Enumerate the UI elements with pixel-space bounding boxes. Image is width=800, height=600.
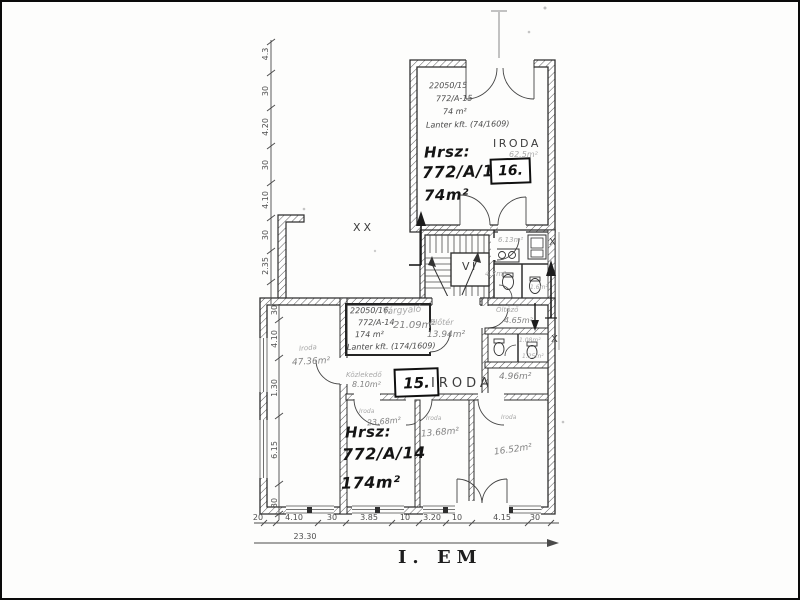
office1-room-name: Iroda [359,409,374,415]
dim-bottom-2: 4.10 [285,514,303,522]
unit16-registry-line4: Lanter kft. (74/1609) [426,120,510,129]
dim-left-lower-4: 6.15 [271,441,279,459]
unit16-room-type-label: IRODA [493,138,541,149]
dim-bottom-1: 20 [253,514,263,522]
dim-bottom-3: 30 [327,514,337,522]
kozlekedo-room-name: Közlekedő [346,372,382,379]
kozlekedo-room-area: 8.10m² [352,381,381,389]
dim-left-lower-5: 30 [271,498,279,508]
office2-room-name: Iroda [426,416,441,422]
dim-left-lower-2: 4.10 [271,330,279,348]
dim-bottom-6: 3.20 [423,514,441,522]
unit15-total-area: 174m² [341,474,401,492]
stairwell-label: VI [462,261,478,272]
dim-left-upper-6: 30 [262,230,270,240]
unit16-hrsz-label: Hrsz: [424,144,470,160]
dim-left-upper-2: 30 [262,86,270,96]
hall-room-area: 4.96m² [499,373,531,382]
floor-plan-drawing [2,2,800,600]
unit16-registry-line3: 74 m² [443,108,467,116]
unit16-eloter-area: 6.13m² [498,237,523,244]
section-mark-upper: X [549,238,558,248]
eloter-room-name: Előtér [430,319,454,327]
dim-bottom-total: 23.30 [294,533,317,541]
eloter-room-area: 13.94m² [427,331,465,340]
unit16-number-badge: 16. [490,157,532,184]
unit16-small-room-area: 1.6m² [530,285,548,291]
wc2-room-area: 1.25m² [522,354,544,360]
dim-left-upper-4: 30 [262,160,270,170]
dim-left-upper-3: 4.20 [262,118,270,136]
open-area-label: XX [353,222,374,233]
oltozo-room-area: 4.65m² [504,317,533,325]
dim-left-lower-3: 1.30 [271,379,279,397]
unit16-wc-area: 4.7m² [485,271,506,278]
dim-bottom-5: 10 [400,514,410,522]
unit16-registry-line2: 772/A-15 [436,95,473,104]
unit15-parcel-number: 772/A/14 [342,445,426,463]
unit16-registry-line1: 22050/15 [429,82,467,91]
unit15-hrsz-label: Hrsz: [345,424,391,440]
unit15-registry-line3: 174 m² [355,331,384,340]
unit15-room-type-label: IRODA [431,377,493,390]
dim-bottom-7: 10 [452,514,462,522]
section-mark-lower: X [551,335,560,345]
office3-room-name: Iroda [501,415,516,421]
oltozo-room-name: Öltöző [496,307,518,314]
dim-left-upper-5: 4.10 [262,191,270,209]
unit16-total-area: 74m² [424,187,469,203]
dim-bottom-4: 3.85 [360,514,378,522]
floor-title: I. EM [398,549,483,567]
wc1-room-area: 1.08m² [519,338,541,344]
dim-left-lower-1: 30 [271,305,279,315]
unit15-registry-line4: Lanter kft. (174/1609) [347,342,436,352]
dim-left-upper-1: 4.3 [262,48,270,61]
floor-plan-scan: 22050/15 772/A-15 74 m² Lanter kft. (74/… [0,0,800,600]
unit15-registry-line2: 772/A-14 [358,319,395,328]
dim-bottom-9: 30 [530,514,540,522]
dim-left-upper-7: 2.35 [262,257,270,275]
dim-bottom-8: 4.15 [493,514,511,522]
